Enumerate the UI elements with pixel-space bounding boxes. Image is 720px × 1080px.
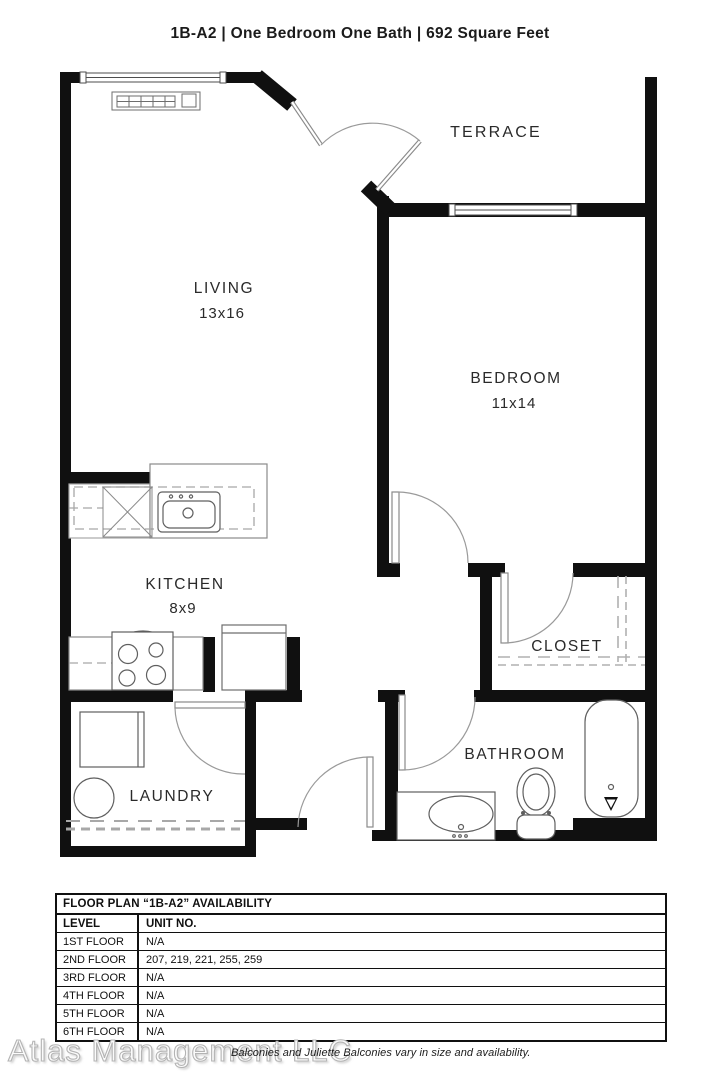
entry-door bbox=[298, 757, 373, 827]
door-leaf bbox=[501, 573, 508, 643]
units-cell: N/A bbox=[139, 1005, 665, 1022]
wall-bathroom-left bbox=[385, 690, 398, 841]
wall-under-tub bbox=[573, 818, 657, 841]
level-cell: 4TH FLOOR bbox=[57, 987, 139, 1004]
burner bbox=[147, 666, 166, 685]
terrace-label: TERRACE bbox=[450, 124, 542, 141]
bedroom-window bbox=[449, 204, 577, 216]
wall-closet-left bbox=[480, 563, 492, 702]
balcony-disclaimer: Balconies and Juliette Balconies vary in… bbox=[231, 1047, 531, 1059]
level-cell: 1ST FLOOR bbox=[57, 933, 139, 950]
laundry-shelf bbox=[66, 821, 245, 829]
door-swing-arc bbox=[395, 492, 468, 563]
door-swing-arc bbox=[175, 708, 245, 774]
closet-label: CLOSET bbox=[531, 638, 603, 655]
bedroom-label: BEDROOM bbox=[470, 370, 561, 387]
laundry-basin bbox=[74, 778, 114, 818]
wall-terrace-right bbox=[645, 77, 657, 217]
refrigerator bbox=[222, 625, 286, 690]
level-cell: 5TH FLOOR bbox=[57, 1005, 139, 1022]
wall-left-outer bbox=[60, 72, 71, 857]
wall-bathroom-top bbox=[474, 690, 657, 702]
wall-fridge-stub-right bbox=[287, 637, 300, 692]
table-row: 2ND FLOOR 207, 219, 221, 255, 259 bbox=[57, 951, 665, 969]
range-stove bbox=[112, 631, 173, 690]
kitchen-dims: 8x9 bbox=[169, 600, 196, 617]
wall-fridge-stub-left bbox=[203, 637, 215, 692]
wall-laundry-bottom bbox=[60, 846, 256, 857]
door-swing-arc bbox=[321, 123, 420, 145]
level-cell: 3RD FLOOR bbox=[57, 969, 139, 986]
door-leaf bbox=[392, 492, 399, 563]
wall-diagonal-top bbox=[257, 76, 292, 105]
column-header-level: LEVEL bbox=[57, 915, 139, 932]
burner bbox=[119, 670, 135, 686]
burner bbox=[149, 643, 163, 657]
units-cell: 207, 219, 221, 255, 259 bbox=[139, 951, 665, 968]
door-swing-arc bbox=[505, 573, 573, 643]
door-leaf bbox=[367, 757, 373, 827]
column-header-units: UNIT NO. bbox=[139, 915, 665, 932]
wall-bedroom-bottom-c bbox=[573, 563, 647, 577]
living-dims: 13x16 bbox=[199, 305, 245, 322]
laundry-label: LAUNDRY bbox=[130, 788, 215, 805]
toilet bbox=[517, 768, 555, 839]
burner bbox=[119, 645, 138, 664]
availability-header-row: LEVEL UNIT NO. bbox=[57, 915, 665, 933]
windows bbox=[80, 72, 577, 216]
units-cell: N/A bbox=[139, 933, 665, 950]
wall-bedroom-bottom-a bbox=[377, 563, 400, 577]
wall-kitchen-bottom-a bbox=[60, 690, 173, 702]
wall-kitchen-half bbox=[69, 472, 151, 484]
table-row: 3RD FLOOR N/A bbox=[57, 969, 665, 987]
living-window bbox=[80, 72, 226, 83]
washer-dryer bbox=[80, 712, 144, 767]
units-cell: N/A bbox=[139, 987, 665, 1004]
availability-table-title: FLOOR PLAN “1B-A2” AVAILABILITY bbox=[57, 895, 665, 915]
kitchen-sink bbox=[158, 492, 220, 532]
bedroom-dims: 11x14 bbox=[492, 395, 537, 412]
heater-unit bbox=[112, 92, 200, 110]
wall-entry-joiner bbox=[245, 830, 256, 857]
wall-right-outer bbox=[645, 217, 657, 841]
wall-laundry-entry-divider bbox=[245, 702, 256, 830]
table-row: 4TH FLOOR N/A bbox=[57, 987, 665, 1005]
bathroom-label: BATHROOM bbox=[464, 746, 565, 763]
laundry-door bbox=[175, 702, 245, 774]
bathtub bbox=[585, 700, 638, 817]
terrace-door bbox=[292, 102, 420, 190]
availability-table: FLOOR PLAN “1B-A2” AVAILABILITY LEVEL UN… bbox=[55, 893, 667, 1042]
table-row: 1ST FLOOR N/A bbox=[57, 933, 665, 951]
closet-door bbox=[501, 573, 573, 643]
living-label: LIVING bbox=[194, 280, 254, 297]
kitchen-label: KITCHEN bbox=[145, 576, 224, 593]
door-leaf bbox=[399, 695, 405, 770]
units-cell: N/A bbox=[139, 969, 665, 986]
door-swing-arc bbox=[298, 757, 370, 827]
level-cell: 2ND FLOOR bbox=[57, 951, 139, 968]
wall-living-bedroom bbox=[377, 196, 389, 568]
vanity-sink bbox=[397, 792, 495, 840]
door-leaf bbox=[175, 702, 245, 708]
table-row: 5TH FLOOR N/A bbox=[57, 1005, 665, 1023]
bedroom-door bbox=[392, 492, 468, 563]
